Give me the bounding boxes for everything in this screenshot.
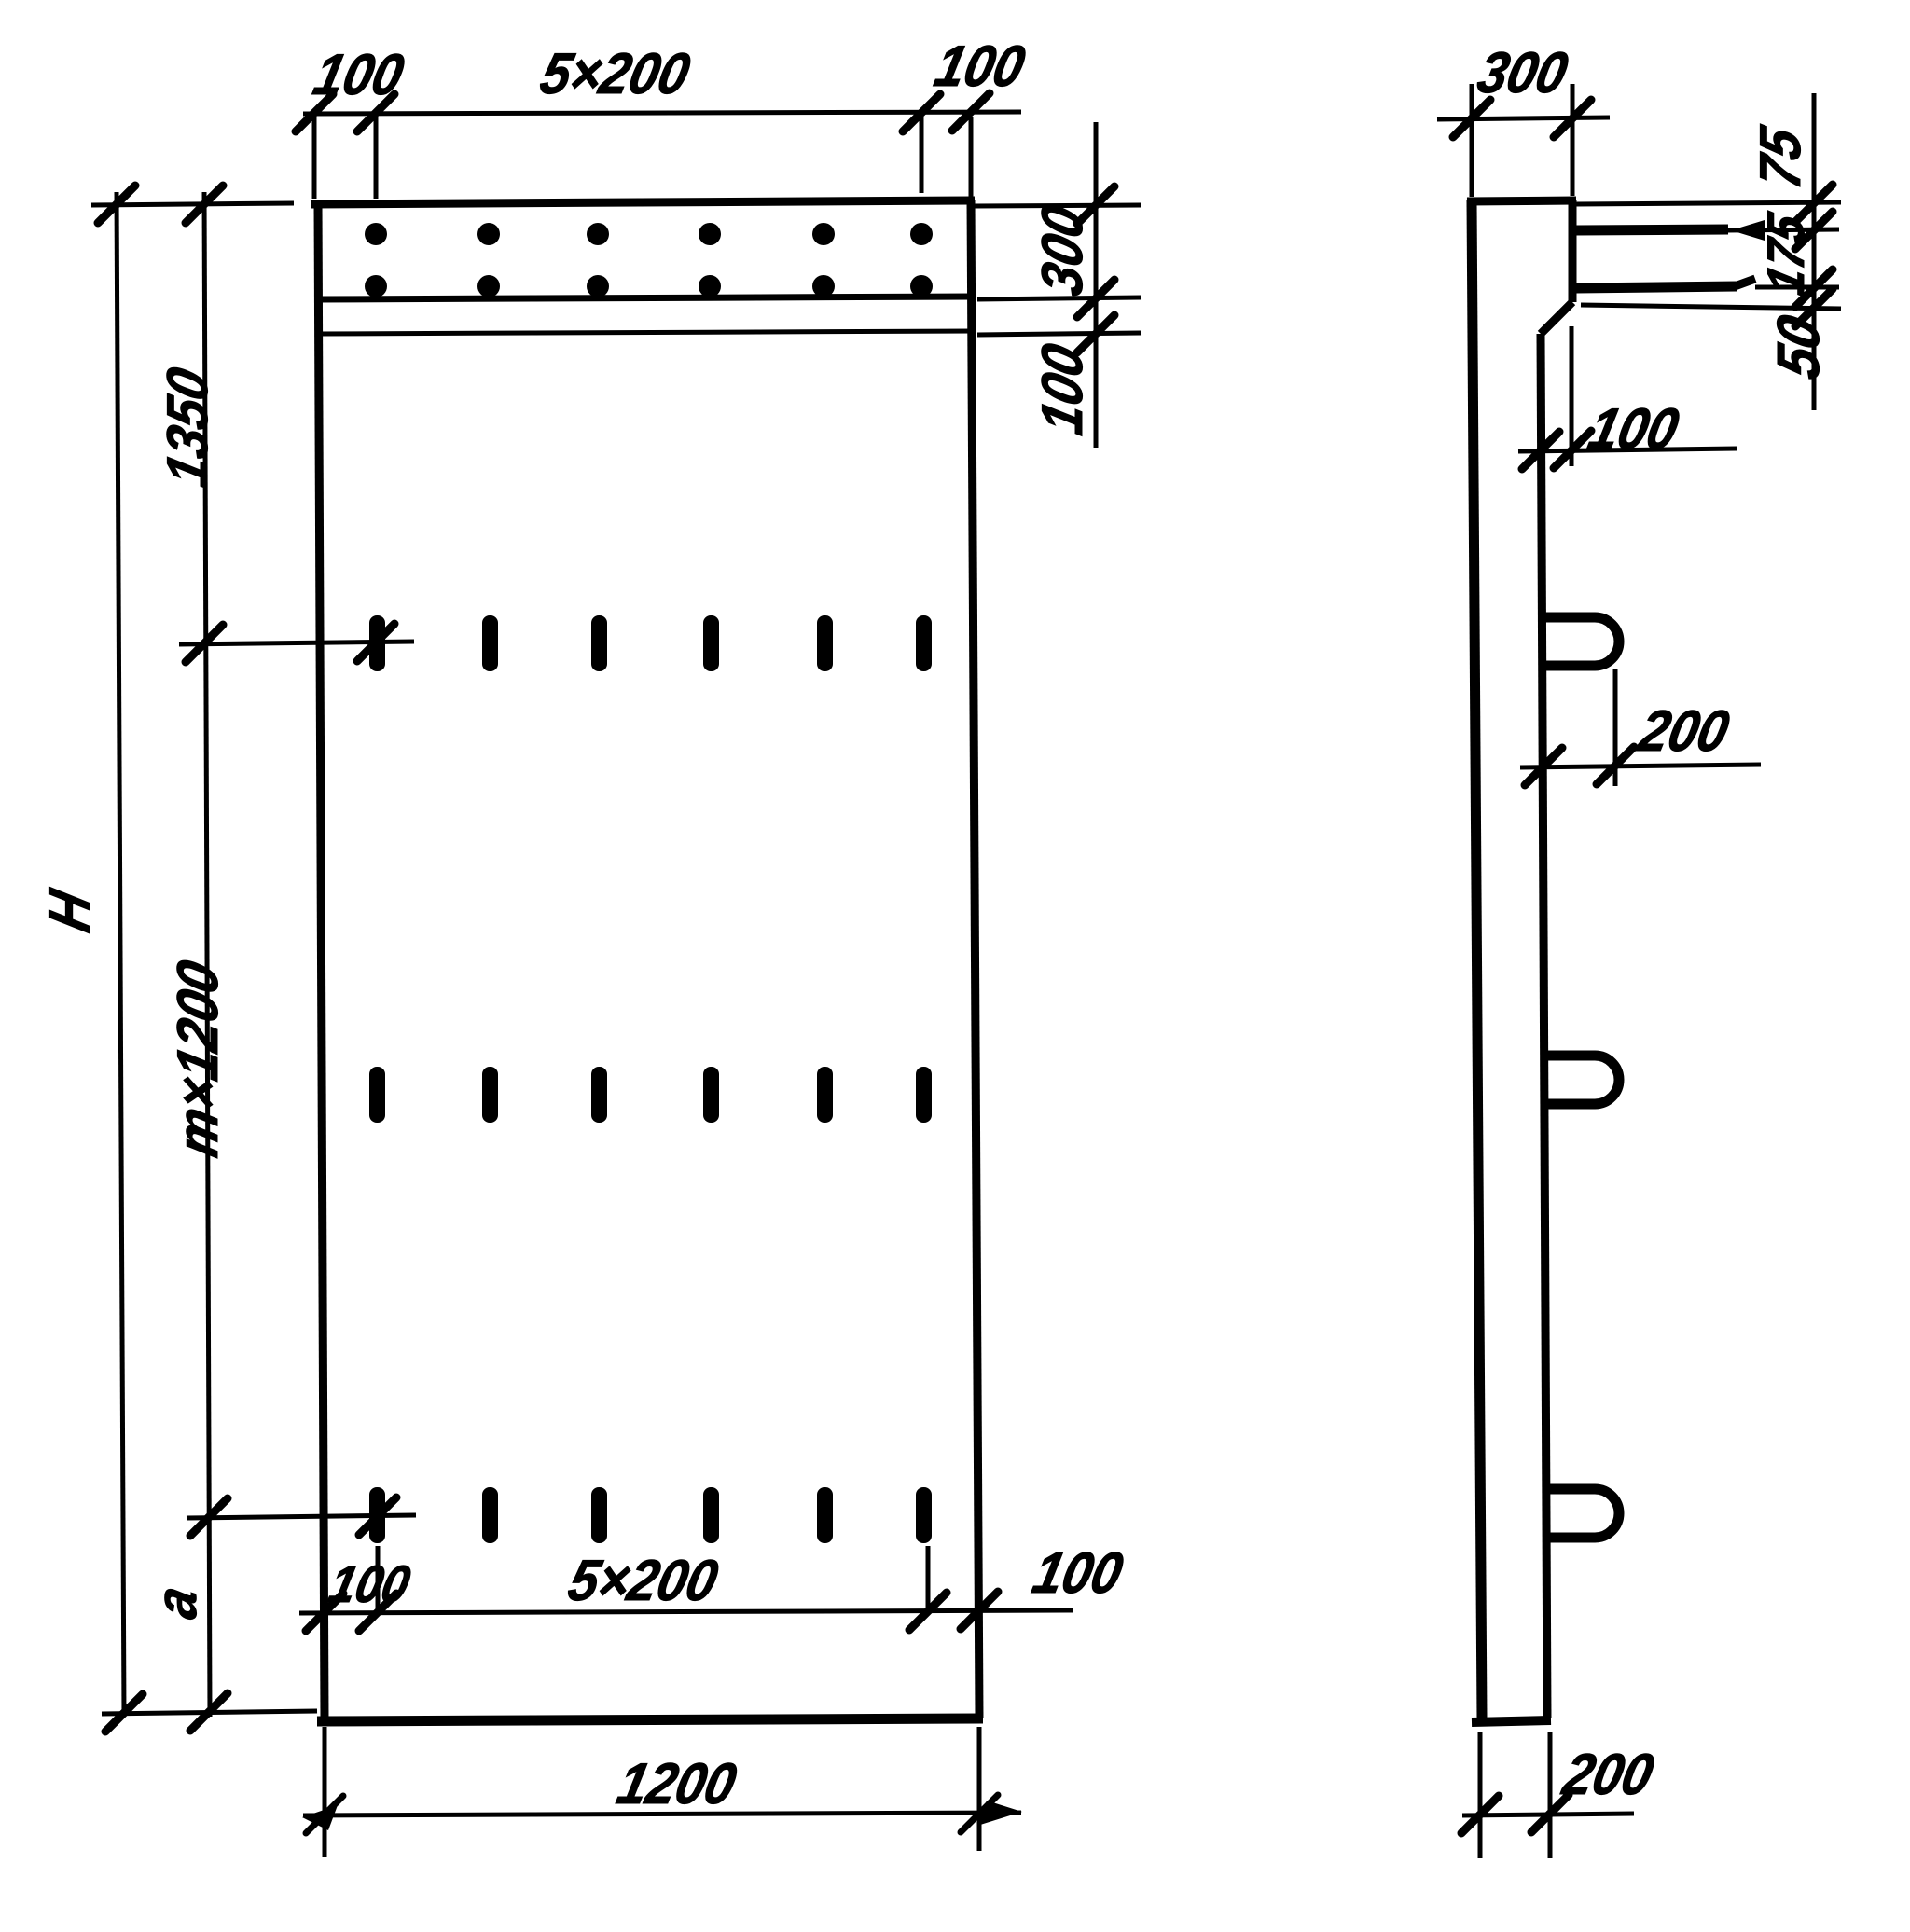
svg-text:100: 100 [1030,338,1094,440]
svg-text:m×1200: m×1200 [165,955,229,1162]
svg-text:200: 200 [1557,1742,1660,1806]
svg-text:100: 100 [1583,396,1684,461]
svg-text:1350: 1350 [155,362,219,492]
svg-text:300: 300 [1030,200,1094,301]
svg-text:1200: 1200 [612,1751,742,1815]
svg-text:300: 300 [1472,40,1573,104]
svg-text:100: 100 [324,1555,415,1613]
svg-text:100: 100 [1027,1540,1128,1605]
svg-text:100: 100 [308,42,409,106]
svg-text:100: 100 [929,34,1031,98]
svg-text:5×200: 5×200 [563,1548,724,1612]
svg-text:175: 175 [1757,208,1815,300]
svg-text:5×200: 5×200 [535,41,696,105]
svg-text:200: 200 [1633,698,1736,763]
